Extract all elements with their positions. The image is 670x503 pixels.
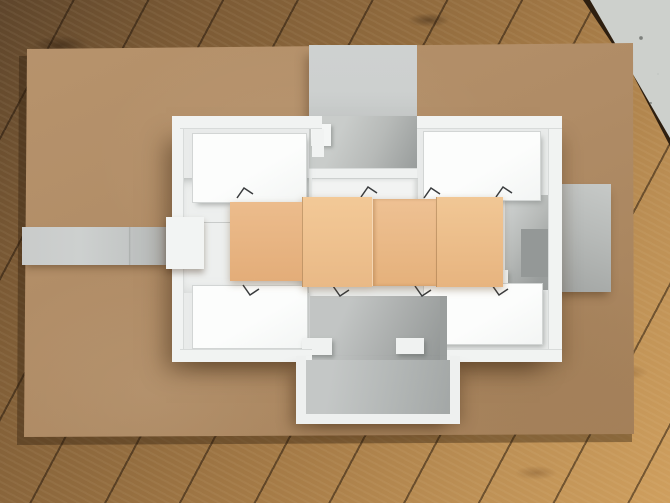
- accordion-paper-strip: [230, 197, 503, 289]
- interior-shadow: [521, 229, 548, 277]
- courtyard-wall-shadow: [440, 296, 447, 362]
- gray-card-right: [554, 184, 611, 292]
- accordion-panel: [302, 197, 372, 287]
- wall-stub-right: [396, 338, 424, 354]
- accordion-panel: [436, 197, 503, 287]
- outer-wall-top-step: [312, 129, 324, 157]
- room-mid-right: [505, 195, 548, 290]
- courtyard-bottom-frame: [296, 356, 460, 424]
- gray-card-strip-left: [22, 227, 168, 265]
- outer-wall-right: [548, 116, 562, 362]
- outer-wall-bottom-right: [447, 349, 562, 362]
- courtyard-low-wall: [309, 168, 417, 178]
- accordion-panel: [372, 199, 436, 286]
- entry-tab-left: [166, 217, 204, 269]
- outer-wall-top-right: [417, 116, 562, 129]
- accordion-panel: [230, 202, 302, 281]
- photo-architectural-model: [0, 0, 670, 503]
- outer-wall-bottom-left: [180, 349, 312, 362]
- courtyard-top: [309, 116, 417, 178]
- outer-wall-top-left: [180, 116, 322, 129]
